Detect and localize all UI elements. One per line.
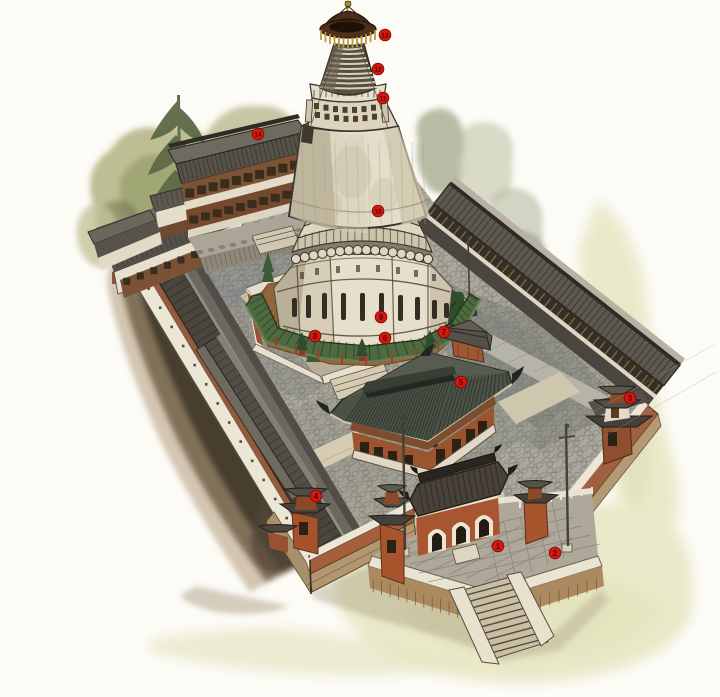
svg-text:6: 6 — [383, 334, 388, 343]
svg-text:1: 1 — [496, 542, 501, 551]
svg-text:10: 10 — [374, 208, 382, 215]
svg-text:2: 2 — [553, 549, 558, 558]
svg-text:3: 3 — [628, 394, 633, 403]
svg-text:11: 11 — [380, 95, 387, 102]
svg-text:8: 8 — [313, 332, 318, 341]
svg-text:4: 4 — [314, 492, 319, 501]
svg-text:12: 12 — [374, 66, 382, 73]
svg-text:14: 14 — [254, 131, 262, 138]
svg-text:7: 7 — [442, 328, 447, 337]
svg-text:5: 5 — [459, 378, 464, 387]
svg-text:13: 13 — [381, 32, 389, 39]
svg-text:9: 9 — [379, 313, 384, 322]
